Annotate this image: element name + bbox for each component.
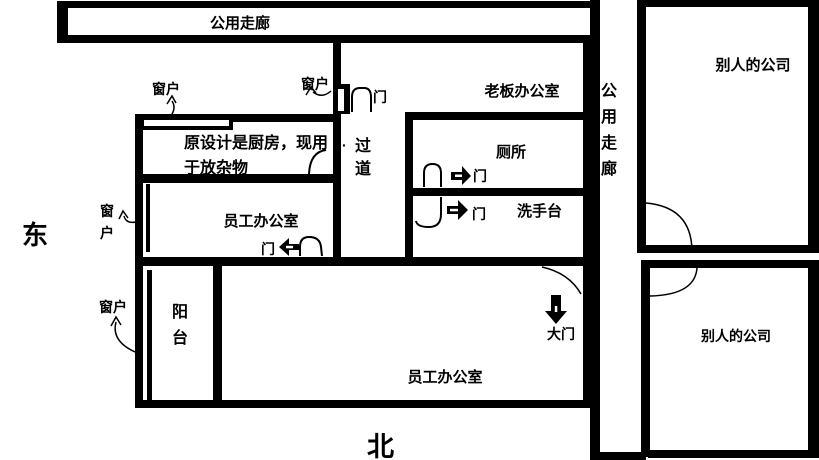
wall-staff-office-large-bottom [135, 400, 592, 408]
window-balcony-pointer-head [111, 317, 121, 326]
window-kitchen-stripe [144, 120, 229, 126]
door-arrow-staff-small-icon [279, 238, 299, 256]
wall-passage-left [333, 43, 341, 266]
wall-toilet-sink-divider [405, 188, 590, 196]
window-kitchen-pointer [172, 101, 174, 114]
door-arc-boss-office [352, 88, 371, 112]
wall-boss-office-bottom [405, 112, 592, 120]
floor-plan: 公用走廊 公用走廊 别人的公司 别人的公司 老板办公室 厕所 洗手台 · 过道 … [0, 0, 819, 460]
wall-east-side [583, 35, 592, 408]
wall-kitchen-left [135, 114, 143, 266]
wall-staff-office-large-left [135, 257, 143, 408]
label-other-company-upper: 别人的公司 [693, 54, 813, 75]
door-arc-toilet [424, 164, 441, 187]
door-arrow-sink-glint [450, 209, 458, 212]
label-kitchen-line1: 原设计是厨房，现用 [184, 129, 328, 153]
wall-other-company-upper-bottom [637, 245, 818, 253]
label-boss-office: 老板办公室 [462, 80, 582, 101]
door-arc-staff-small [300, 237, 322, 256]
window-staff-small-pointer-head [119, 211, 128, 219]
door-arrow-toilet-glint [455, 175, 462, 178]
door-arrow-sink-icon [447, 200, 468, 220]
label-right-corridor: 公用走廊 [601, 79, 619, 183]
label-kitchen-line2: 于放杂物 [184, 154, 248, 178]
label-door-staff-small: 门 [261, 239, 275, 259]
window-balcony-pointer [115, 322, 135, 352]
wall-right-corridor-bottom-cap [592, 452, 646, 460]
label-main-door: 大门 [543, 324, 579, 344]
main-door-arrow-icon [545, 295, 567, 324]
door-arrow-staff-small-glint [286, 246, 293, 249]
wall-other-company-upper-right [808, 0, 819, 253]
compass-east: 东 [22, 215, 48, 252]
label-window-balcony: 窗户 [99, 297, 127, 317]
label-window-kitchen: 窗户 [152, 79, 180, 99]
label-passage: 过道 [355, 135, 373, 181]
label-door-boss: 门 [373, 87, 387, 107]
wall-top-corridor-bottom [57, 35, 592, 43]
wall-other-company-upper-top [637, 0, 818, 7]
label-staff-office-large: 员工办公室 [385, 366, 505, 387]
label-top-corridor: 公用走廊 [180, 12, 300, 33]
label-other-company-lower: 别人的公司 [676, 326, 796, 346]
window-passage-stripe [338, 89, 344, 111]
wall-other-company-lower-left [641, 260, 650, 457]
label-staff-office-small: 员工办公室 [201, 210, 321, 231]
main-door-arrow-glint [555, 306, 558, 312]
wall-other-company-lower-right [808, 260, 819, 457]
compass-north: 北 [367, 425, 394, 460]
door-arc-sink [416, 197, 441, 227]
door-arrow-toilet-icon [451, 166, 471, 185]
wall-right-corridor-right-upper [637, 0, 646, 253]
label-window-staff-small: 窗户 [100, 200, 116, 244]
label-door-toilet: 门 [473, 166, 487, 186]
wall-top-corridor-top [57, 1, 592, 8]
label-window-passage: 窗户 [301, 74, 329, 94]
wall-other-company-lower-bottom [648, 450, 819, 458]
label-door-sink: 门 [472, 204, 486, 224]
door-arc-kitchen [309, 150, 326, 174]
window-staff-small-icon [146, 184, 150, 252]
wall-other-company-lower-top [641, 260, 818, 268]
door-arc-other-company-lower [650, 268, 697, 296]
label-sink: 洗手台 [512, 200, 567, 221]
label-passage-dot: · [342, 137, 347, 153]
label-balcony: 阳台 [172, 300, 190, 352]
label-toilet: 厕所 [481, 141, 541, 162]
wall-staff-office-large-top [135, 257, 592, 266]
door-arc-other-company-upper [646, 203, 692, 250]
door-arc-main-door [542, 267, 581, 294]
window-balcony-icon [147, 270, 152, 400]
wall-balcony-right [213, 266, 222, 402]
